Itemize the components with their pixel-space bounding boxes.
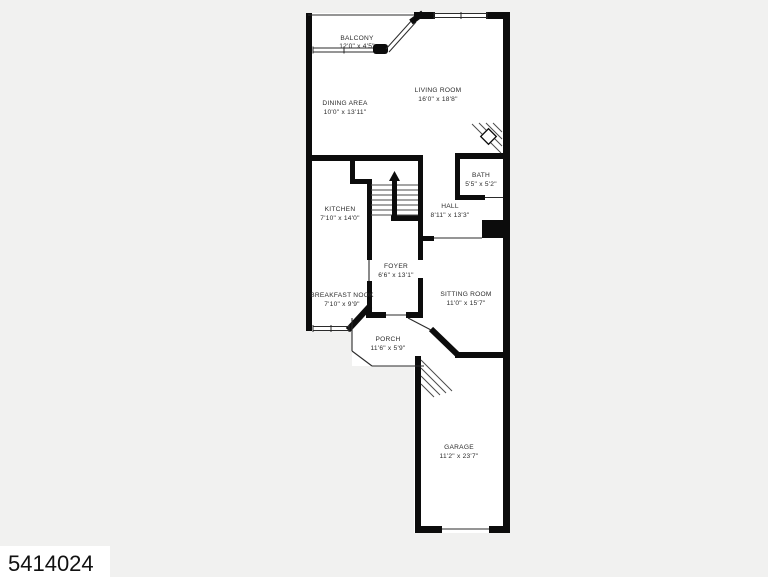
svg-text:BATH: BATH <box>472 172 490 179</box>
svg-text:11'6" x 5'9": 11'6" x 5'9" <box>370 345 405 352</box>
svg-text:SITTING ROOM: SITTING ROOM <box>440 291 491 298</box>
svg-text:11'0" x 15'7": 11'0" x 15'7" <box>447 300 486 307</box>
svg-text:LIVING ROOM: LIVING ROOM <box>415 87 462 94</box>
svg-text:BREAKFAST NOOK: BREAKFAST NOOK <box>310 292 374 299</box>
svg-text:BALCONY: BALCONY <box>340 35 374 42</box>
svg-text:10'0" x 13'11": 10'0" x 13'11" <box>324 109 367 116</box>
svg-text:11'2" x 23'7": 11'2" x 23'7" <box>440 453 479 460</box>
svg-text:6'6" x 13'1": 6'6" x 13'1" <box>378 272 414 279</box>
svg-text:KITCHEN: KITCHEN <box>325 206 356 213</box>
svg-text:7'10" x 14'0": 7'10" x 14'0" <box>320 215 360 222</box>
svg-text:PORCH: PORCH <box>375 336 400 343</box>
svg-text:FOYER: FOYER <box>384 263 408 270</box>
floorplan-svg: BALCONY 12'0" x 4'5" LIVING ROOM 16'0" x… <box>0 0 768 577</box>
chimney-block <box>482 220 504 238</box>
svg-text:HALL: HALL <box>441 203 459 210</box>
room-label-balcony: BALCONY 12'0" x 4'5" <box>339 35 375 50</box>
floorplan-image: BALCONY 12'0" x 4'5" LIVING ROOM 16'0" x… <box>0 0 768 577</box>
svg-text:7'10" x 9'9": 7'10" x 9'9" <box>324 301 360 308</box>
svg-text:GARAGE: GARAGE <box>444 444 474 451</box>
svg-text:8'11" x 13'3": 8'11" x 13'3" <box>431 212 470 219</box>
svg-text:DINING AREA: DINING AREA <box>322 100 368 107</box>
watermark-id: 5414024 <box>8 551 94 576</box>
watermark: 5414024 <box>0 546 110 577</box>
svg-text:5'5" x 5'2": 5'5" x 5'2" <box>465 181 497 188</box>
svg-text:16'0" x 18'8": 16'0" x 18'8" <box>418 96 458 103</box>
svg-text:12'0" x 4'5": 12'0" x 4'5" <box>339 43 375 50</box>
